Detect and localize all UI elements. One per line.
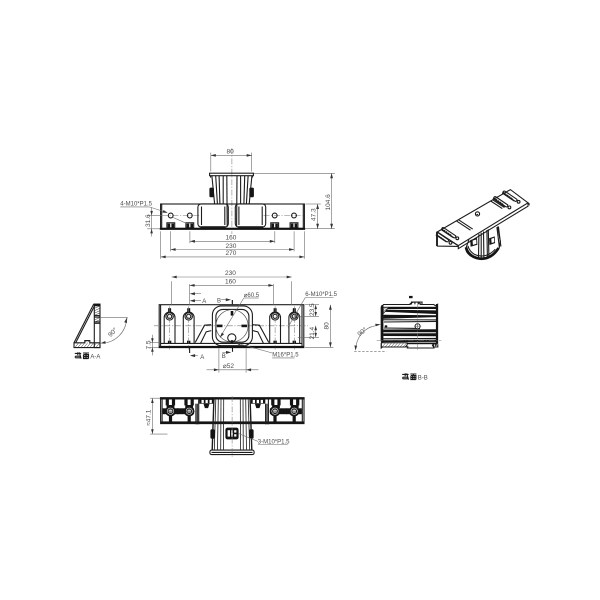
svg-text:230: 230 <box>225 270 236 277</box>
svg-text:104.6: 104.6 <box>325 194 332 211</box>
svg-text:80: 80 <box>227 149 235 156</box>
svg-text:B-B: B-B <box>418 375 428 381</box>
svg-text:160: 160 <box>226 235 237 242</box>
svg-text:31.6: 31.6 <box>145 214 152 227</box>
svg-text:47.3: 47.3 <box>311 208 318 221</box>
svg-text:80: 80 <box>324 322 331 330</box>
svg-text:A-A: A-A <box>90 354 100 360</box>
svg-text:270: 270 <box>226 250 237 257</box>
svg-text:A: A <box>200 355 204 361</box>
svg-text:23.5: 23.5 <box>309 303 316 316</box>
svg-text:≈47.1: ≈47.1 <box>146 409 153 426</box>
svg-text:21.4: 21.4 <box>309 326 316 339</box>
svg-text:B: B <box>217 299 221 305</box>
svg-text:7.5: 7.5 <box>146 340 153 349</box>
svg-text:230: 230 <box>226 243 237 250</box>
svg-text:160: 160 <box>225 279 236 286</box>
svg-text:B: B <box>222 354 226 360</box>
svg-text:⌀52: ⌀52 <box>223 363 235 370</box>
svg-text:A: A <box>202 299 206 305</box>
